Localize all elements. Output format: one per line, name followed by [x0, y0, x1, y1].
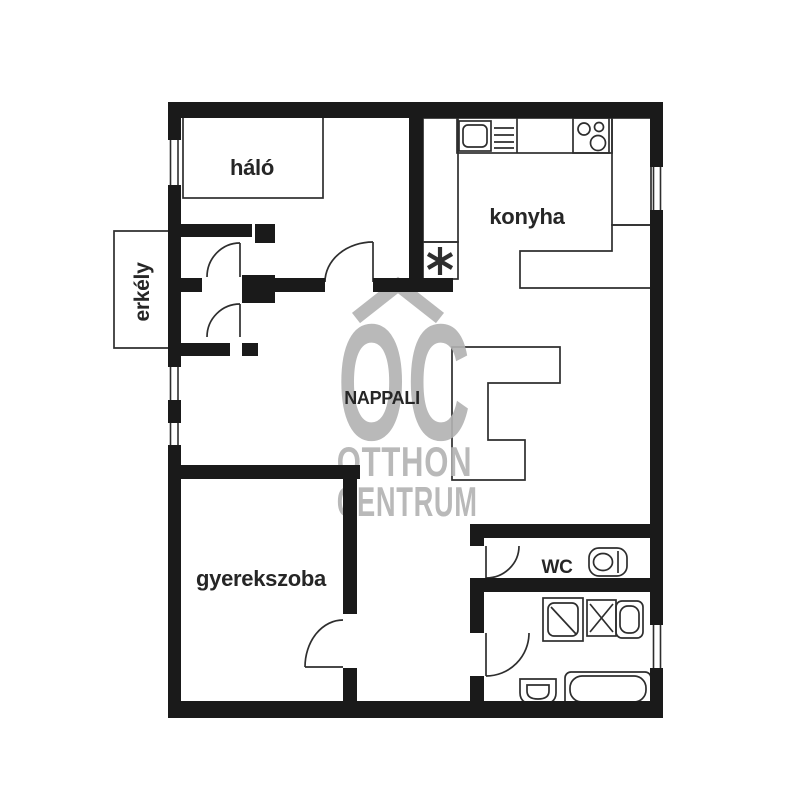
wall: [343, 668, 357, 701]
room-label-wc: WC: [541, 557, 573, 578]
room-label-nappali: NAPPALI: [344, 388, 420, 408]
wall: [168, 701, 663, 718]
wall: [168, 102, 663, 118]
wall: [168, 278, 202, 292]
wall: [470, 524, 663, 538]
wall: [470, 524, 484, 546]
wall: [470, 578, 663, 592]
wall: [168, 445, 181, 701]
wall: [168, 185, 181, 367]
room-label-halo: háló: [230, 155, 274, 180]
watermark-line2: CENTRUM: [337, 478, 478, 525]
wall: [470, 676, 484, 701]
wall: [242, 275, 275, 303]
wall: [650, 102, 663, 167]
wall: [343, 479, 357, 614]
wall: [255, 224, 275, 243]
room-label-gyerekszoba: gyerekszoba: [196, 566, 327, 591]
room-label-erkely: erkély: [131, 262, 154, 322]
wall: [242, 343, 258, 356]
wall: [650, 668, 663, 701]
wall: [168, 400, 181, 423]
wall: [168, 465, 360, 479]
wall: [168, 102, 181, 140]
floor-plan: OC OTTHON CENTRUM: [0, 0, 800, 798]
wall: [470, 592, 484, 633]
wall: [373, 278, 453, 292]
wall: [168, 343, 230, 356]
wall: [650, 210, 663, 625]
room-label-konyha: konyha: [489, 204, 565, 229]
wall: [168, 224, 252, 237]
wall: [409, 118, 423, 292]
